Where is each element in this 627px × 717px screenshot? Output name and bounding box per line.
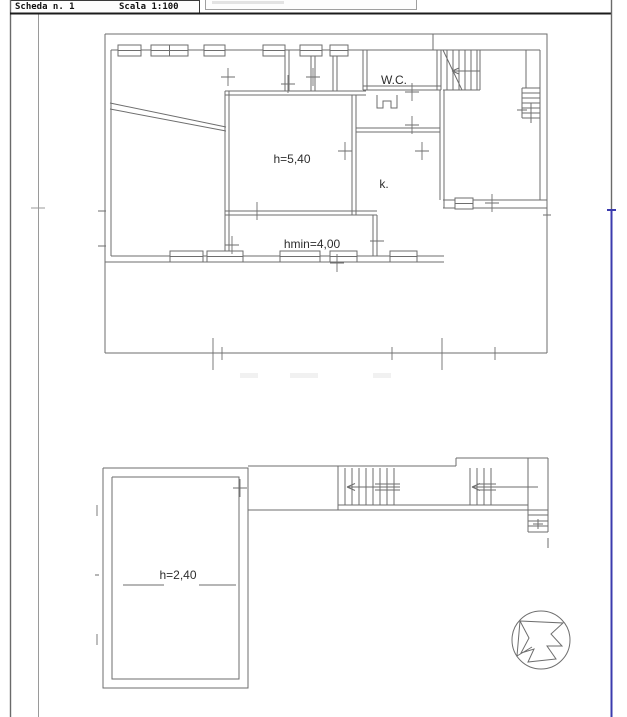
stairs-lower-end-icon xyxy=(528,458,548,548)
erased-caption-marks xyxy=(240,373,391,378)
upper-floor-plan: W.C. h=5,40 k. hmin=4,00 xyxy=(98,34,551,272)
drawing-sheet: Scheda n. 1 Scala 1:100 xyxy=(0,0,627,717)
stairs-right-icon xyxy=(517,50,540,123)
room-label-kitchen: k. xyxy=(379,177,388,191)
upper-plan-windows-bottom xyxy=(170,198,473,262)
room-label-lower-height: h=2,40 xyxy=(159,568,196,582)
floor-plan-drawing: W.C. h=5,40 k. hmin=4,00 xyxy=(0,0,627,717)
lower-plan-ticks xyxy=(95,479,247,645)
outer-walls xyxy=(105,34,547,262)
room-label-min-height: hmin=4,00 xyxy=(284,237,341,251)
staircase-lower-left-icon xyxy=(345,468,400,505)
room-label-wc: W.C. xyxy=(381,73,407,87)
site-outline xyxy=(105,209,547,370)
site-ticks xyxy=(213,338,495,370)
room-label-main-height: h=5,40 xyxy=(273,152,310,166)
north-arrow-icon xyxy=(512,611,570,669)
staircase-upper-icon xyxy=(443,50,480,90)
lower-floor-plan: h=2,40 xyxy=(95,458,548,688)
